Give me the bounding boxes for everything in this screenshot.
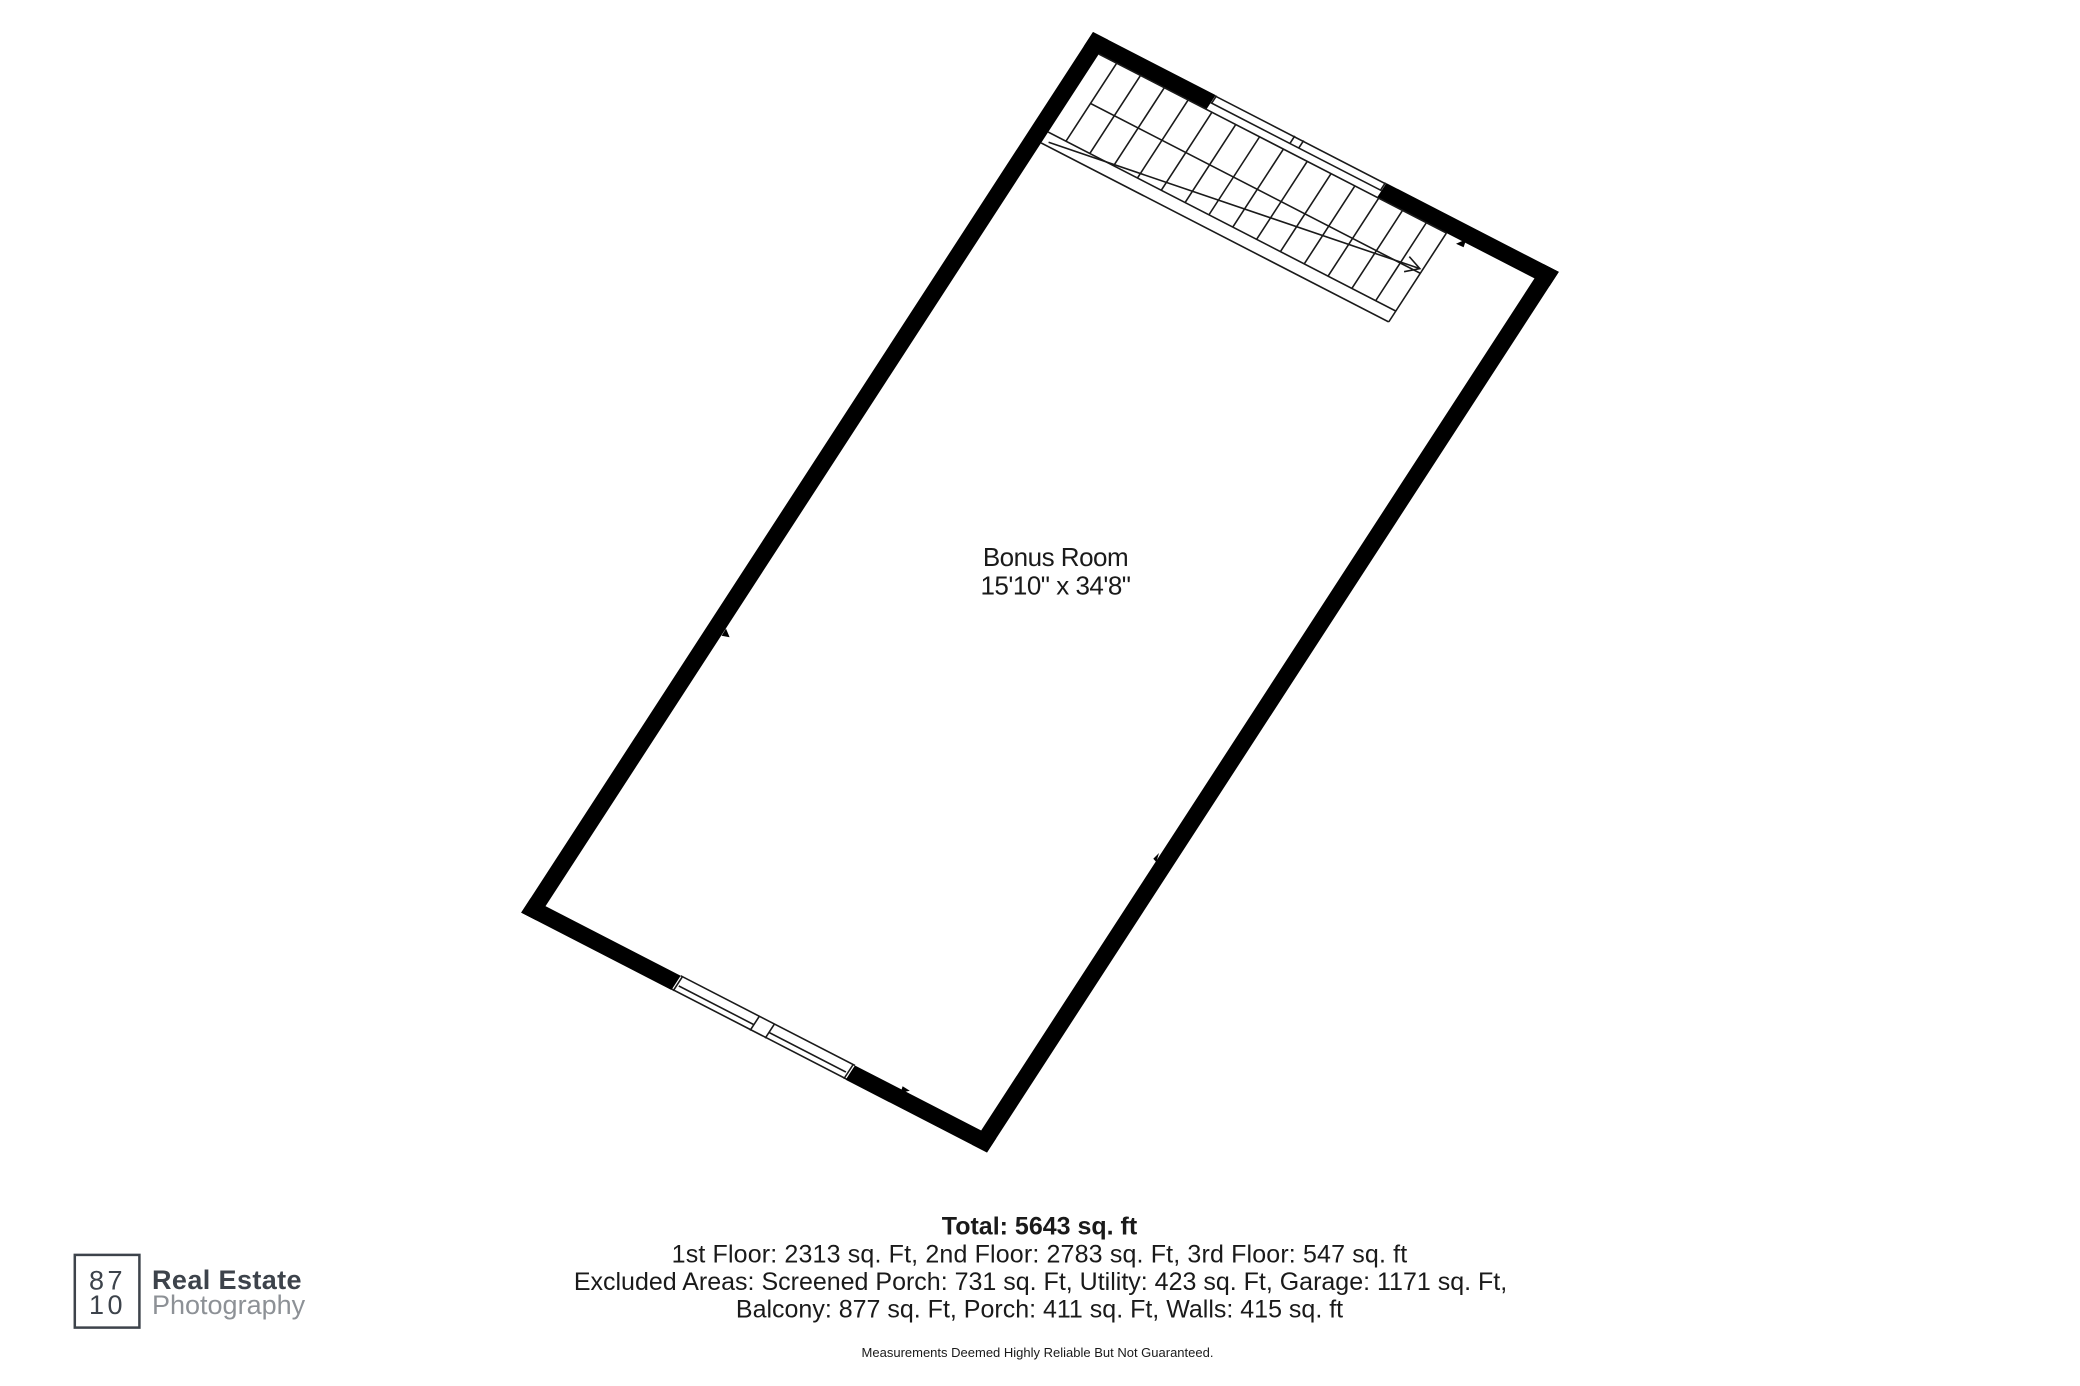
svg-text:Bonus Room: Bonus Room: [983, 542, 1128, 572]
svg-text:Balcony: 877 sq. Ft, Porch: 41: Balcony: 877 sq. Ft, Porch: 411 sq. Ft, …: [736, 1296, 1343, 1324]
svg-text:Photography: Photography: [152, 1290, 306, 1320]
svg-text:Measurements Deemed Highly Rel: Measurements Deemed Highly Reliable But …: [862, 1345, 1214, 1360]
svg-text:15'10" x 34'8": 15'10" x 34'8": [980, 570, 1130, 600]
svg-text:10: 10: [89, 1290, 126, 1320]
svg-text:Excluded Areas: Screened Porch: Excluded Areas: Screened Porch: 731 sq. …: [574, 1268, 1507, 1296]
svg-text:Total: 5643 sq. ft: Total: 5643 sq. ft: [942, 1213, 1138, 1241]
svg-text:1st Floor: 2313 sq. Ft, 2nd Fl: 1st Floor: 2313 sq. Ft, 2nd Floor: 2783 …: [672, 1241, 1408, 1269]
